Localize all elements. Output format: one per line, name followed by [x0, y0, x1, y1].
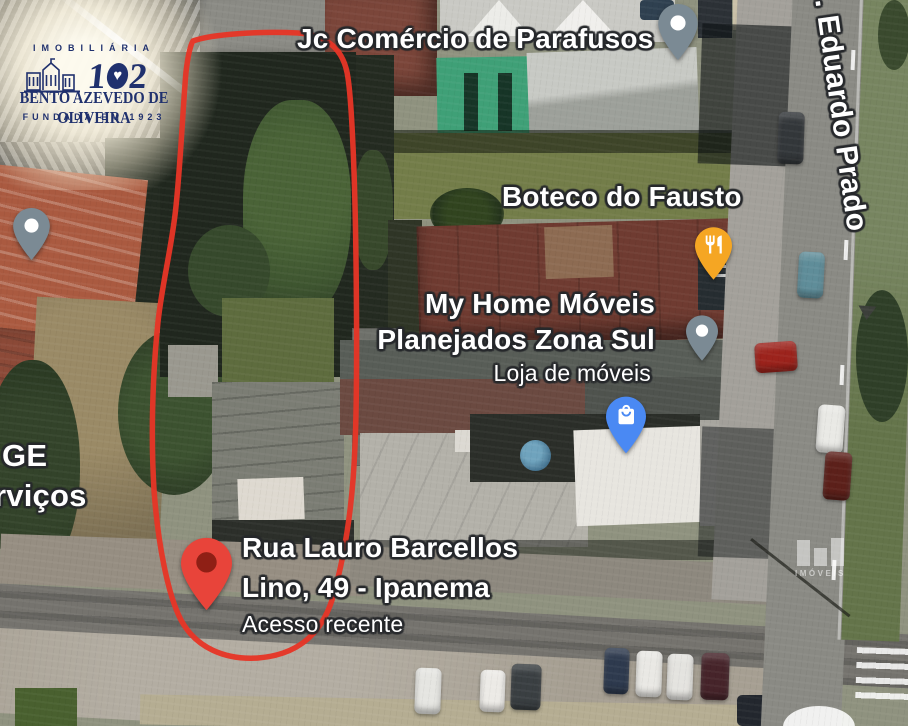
- roof-block: [436, 56, 533, 138]
- poi-label-partial-line2: rviços: [0, 477, 87, 514]
- restaurant-pin-icon: [695, 227, 732, 280]
- jc-comercio-pin[interactable]: [658, 4, 698, 65]
- logo-category: IMOBILIÁRIA: [14, 43, 174, 53]
- poi-label-myhome-sub: Loja de móveis: [330, 358, 651, 388]
- logo-agency-name: BENTO AZEVEDO DE OLIVEIRA: [6, 89, 182, 128]
- left-place-pin[interactable]: [13, 208, 50, 265]
- car: [603, 648, 630, 695]
- car: [414, 668, 442, 715]
- car: [635, 651, 663, 698]
- grass: [15, 688, 77, 726]
- selected-place-line2: Lino, 49 - Ipanema: [242, 568, 518, 608]
- boteco-restaurant-pin[interactable]: [695, 227, 732, 285]
- heart-icon: ♥: [112, 69, 122, 84]
- tree: [878, 0, 908, 70]
- agency-logo: IMOBILIÁRIA 1 ♥ 2 BENTO AZEVED: [0, 0, 230, 175]
- place-pin-icon: [686, 315, 718, 361]
- selected-place-line1: Rua Lauro Barcellos: [242, 528, 518, 568]
- shopping-pin-icon: [606, 395, 646, 455]
- red-location-pin-icon: [181, 536, 232, 612]
- satellite-map[interactable]: Jc Comércio de Parafusos Boteco do Faust…: [0, 0, 908, 726]
- selected-place-label[interactable]: Rua Lauro Barcellos Lino, 49 - Ipanema A…: [242, 528, 518, 640]
- shopping-pin[interactable]: [606, 395, 646, 460]
- selected-place-red-pin[interactable]: [181, 536, 232, 617]
- grass: [222, 298, 334, 392]
- place-pin-icon: [13, 208, 50, 260]
- poi-label-myhome-line2: Planejados Zona Sul: [330, 322, 655, 358]
- car: [797, 251, 825, 298]
- car: [510, 663, 542, 710]
- poi-label-myhome[interactable]: My Home Móveis Planejados Zona Sul Loja …: [330, 286, 655, 388]
- poi-label-myhome-line1: My Home Móveis: [330, 286, 655, 322]
- poi-label-jc-comercio[interactable]: Jc Comércio de Parafusos: [297, 22, 654, 56]
- car: [822, 451, 852, 501]
- car: [479, 670, 505, 713]
- crosswalk: [855, 647, 908, 707]
- car: [777, 112, 805, 165]
- car: [700, 653, 730, 701]
- car: [666, 654, 694, 701]
- logo-founded: FUNDADA EM 1923: [10, 112, 178, 122]
- selected-place-sub: Acesso recente: [242, 608, 518, 640]
- logo-zero-badge: ♥: [106, 63, 130, 89]
- poi-label-partial-line1: GE: [2, 437, 47, 474]
- car: [754, 341, 798, 374]
- place-pin-icon: [658, 4, 698, 60]
- myhome-pin[interactable]: [686, 315, 718, 366]
- car: [815, 404, 845, 454]
- poi-label-boteco[interactable]: Boteco do Fausto: [502, 180, 742, 214]
